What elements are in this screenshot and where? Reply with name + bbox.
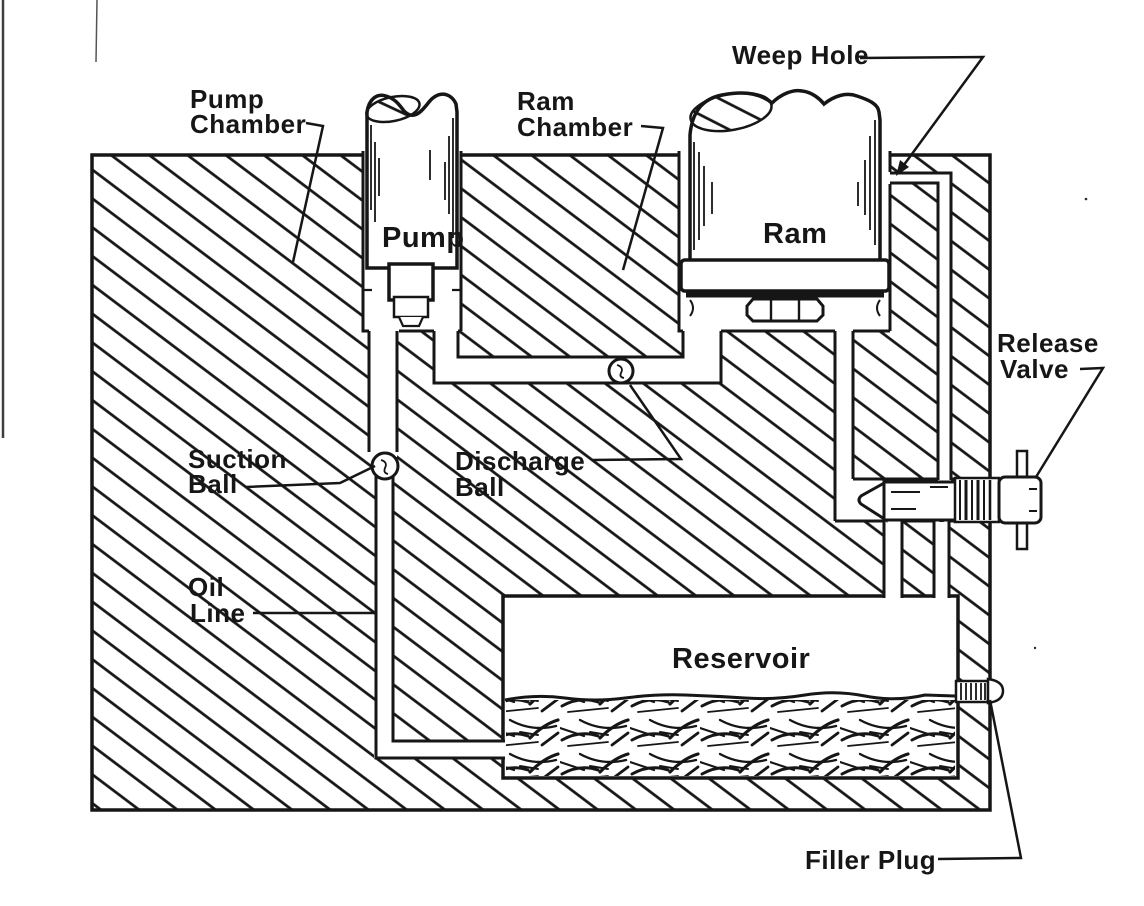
reservoir-label: Reservoir (672, 643, 810, 675)
discharge-ball-label-line2: Ball (455, 472, 505, 502)
ram-assembly: Ram (681, 87, 889, 321)
suction-ball-label-line2: Ball (188, 469, 238, 499)
ram-part-label: Ram (763, 218, 827, 250)
scan-speck-2 (1034, 647, 1036, 649)
valve-knob (999, 477, 1041, 523)
release-valve-label-line2: Valve (1000, 354, 1069, 384)
oil-line-vertical (376, 457, 393, 741)
filler-plug-label: Filler Plug (805, 845, 936, 875)
pump-part-label: Pump (382, 222, 465, 254)
ram-chamber-label-line2: Chamber (517, 112, 633, 142)
filler-plug-head (988, 679, 1003, 703)
diagram-page: Pump Ram (0, 0, 1144, 906)
jack-cutaway-diagram: Pump Ram (0, 0, 1144, 906)
return-drop-left (884, 522, 902, 599)
pump-valve-seat (399, 317, 423, 326)
return-drop-right (934, 522, 949, 599)
pump-packing-gland (389, 264, 433, 300)
oil-line-horizontal (374, 741, 506, 758)
pump-chamber-label-line2: Chamber (190, 109, 306, 139)
valve-pin-bottom (1017, 521, 1027, 549)
ram-flange (681, 260, 889, 291)
oil-texture (506, 700, 955, 776)
pump-packing-cup (394, 297, 428, 317)
scan-speck (1085, 198, 1088, 201)
ram-retainer-nut (747, 299, 823, 321)
filler-plug-assembly (956, 679, 1003, 703)
scan-fold-mark (96, 0, 97, 62)
suction-channel (369, 331, 397, 457)
valve-pin-top (1017, 451, 1027, 479)
ram-feed-riser (683, 331, 721, 383)
weep-hole-label: Weep Hole (732, 40, 869, 70)
weep-return-channel (938, 173, 951, 480)
discharge-channel (434, 357, 721, 383)
oil-line-label-line2: Line (190, 598, 245, 628)
